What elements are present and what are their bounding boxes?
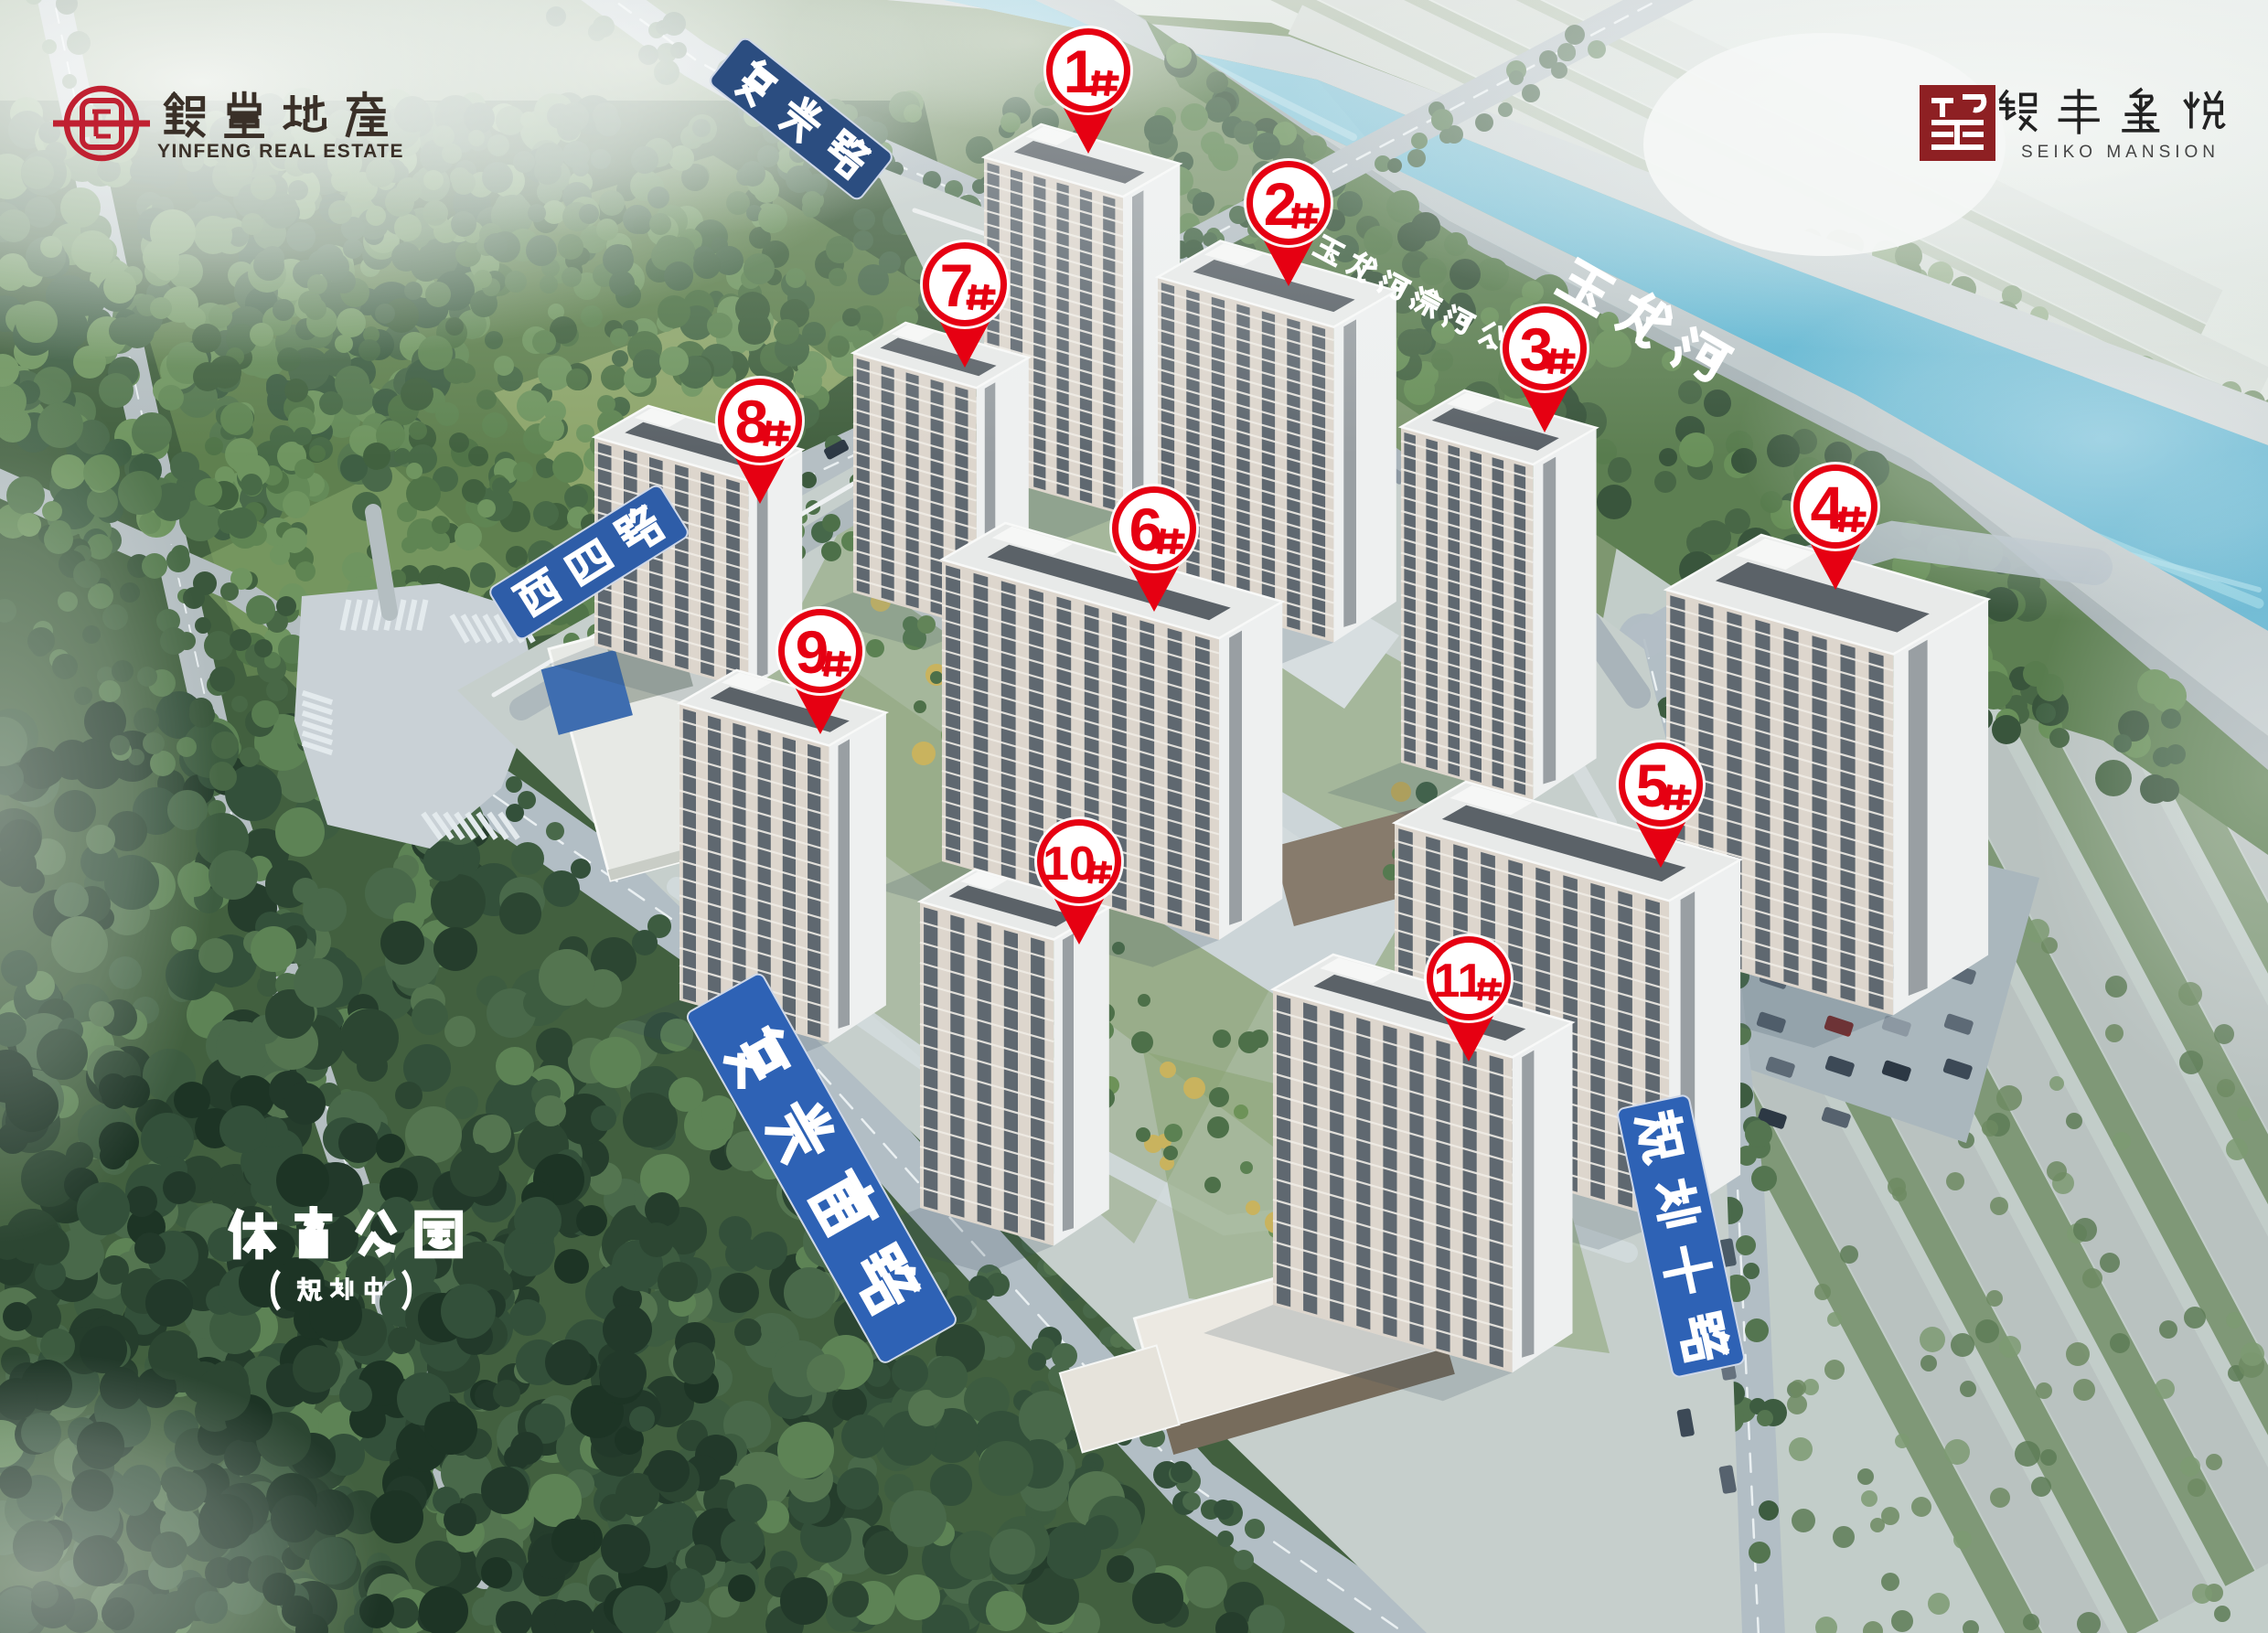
svg-text:YINFENG REAL ESTATE: YINFENG REAL ESTATE	[157, 141, 404, 162]
svg-text:SEIKO MANSION: SEIKO MANSION	[2021, 143, 2220, 162]
svg-text:10: 10	[1043, 838, 1096, 891]
svg-text:11: 11	[1434, 955, 1484, 1008]
